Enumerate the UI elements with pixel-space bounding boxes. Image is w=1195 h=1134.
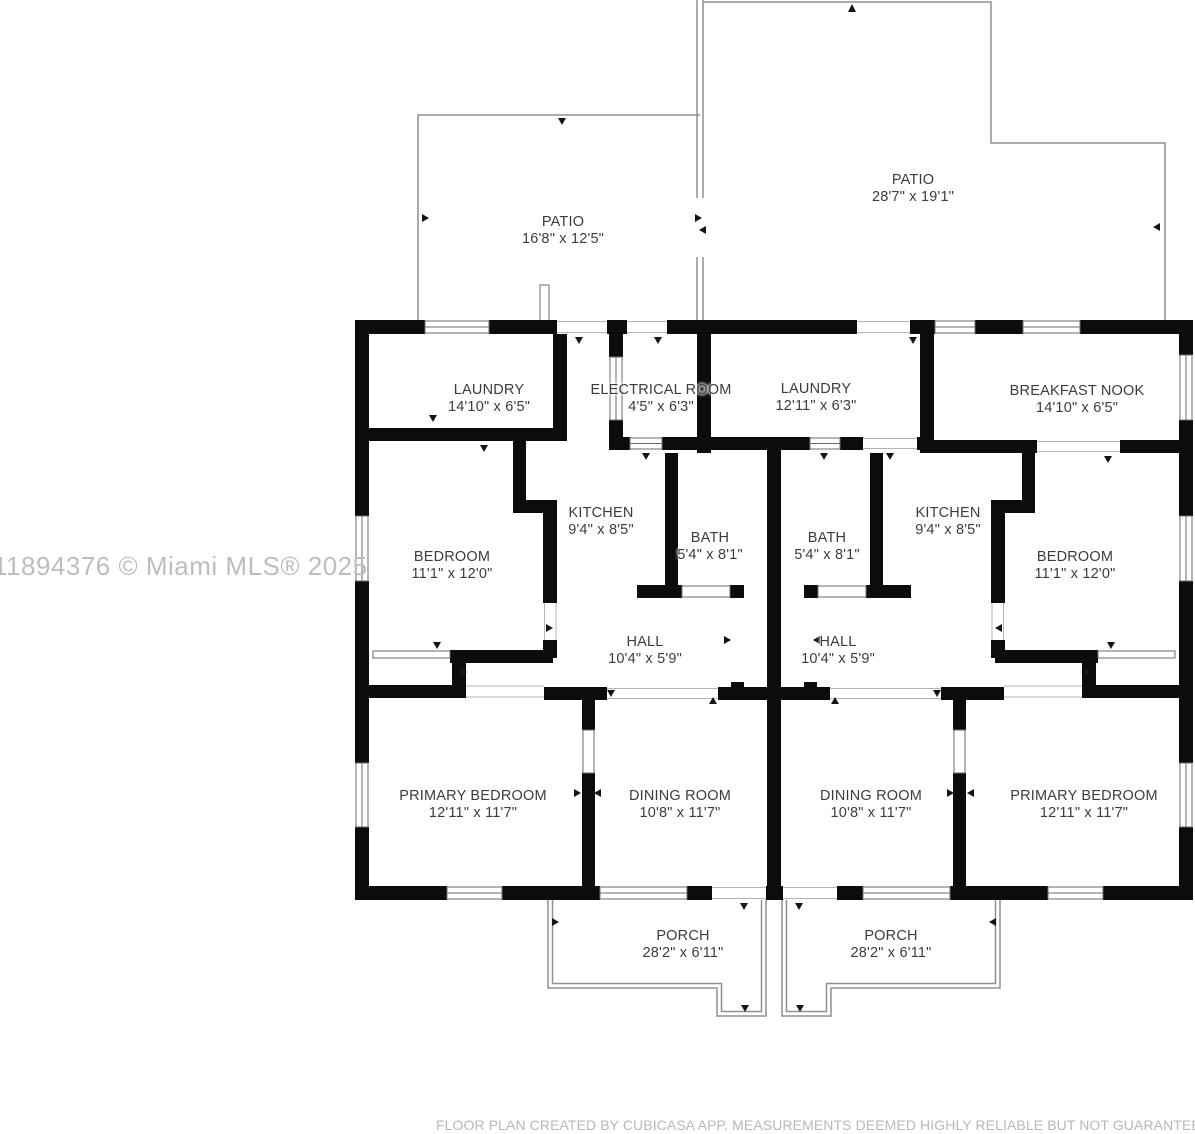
room-dims: 28'7" x 19'1" [872, 189, 954, 206]
room-name: BEDROOM [1034, 549, 1115, 566]
room-dims: 16'8" x 12'5" [522, 231, 604, 248]
room-dims: 10'8" x 11'7" [629, 805, 731, 822]
room-label-bath-left: BATH5'4" x 8'1" [677, 530, 743, 564]
room-name: HALL [608, 634, 682, 651]
room-name: PRIMARY BEDROOM [399, 788, 547, 805]
room-label-porch-right: PORCH28'2" x 6'11" [850, 928, 931, 962]
room-dims: 28'2" x 6'11" [850, 945, 931, 962]
patio-outlines [418, 0, 1165, 322]
room-dims: 12'11" x 11'7" [399, 805, 547, 822]
room-label-bath-right: BATH5'4" x 8'1" [794, 530, 860, 564]
room-dims: 11'1" x 12'0" [411, 566, 492, 583]
room-dims: 9'4" x 8'5" [568, 522, 634, 539]
room-label-electrical-room: ELECTRICAL ROOM4'5" x 6'3" [590, 382, 731, 416]
room-dims: 5'4" x 8'1" [794, 547, 860, 564]
room-name: LAUNDRY [448, 382, 530, 399]
room-name: DINING ROOM [629, 788, 731, 805]
room-label-patio-right: PATIO28'7" x 19'1" [872, 172, 954, 206]
room-name: ELECTRICAL ROOM [590, 382, 731, 399]
room-name: BATH [677, 530, 743, 547]
room-name: LAUNDRY [775, 381, 856, 398]
room-dims: 12'11" x 11'7" [1010, 805, 1158, 822]
footer-disclaimer: FLOOR PLAN CREATED BY CUBICASA APP. MEAS… [436, 1117, 1195, 1133]
room-name: PATIO [872, 172, 954, 189]
room-dims: 10'8" x 11'7" [820, 805, 922, 822]
room-label-hall-left: HALL10'4" x 5'9" [608, 634, 682, 668]
room-dims: 28'2" x 6'11" [642, 945, 723, 962]
room-name: BATH [794, 530, 860, 547]
room-name: HALL [801, 634, 875, 651]
floor-plan-page: PATIO16'8" x 12'5" PATIO28'7" x 19'1" LA… [0, 0, 1195, 1134]
room-label-kitchen-right: KITCHEN9'4" x 8'5" [915, 505, 981, 539]
room-name: PRIMARY BEDROOM [1010, 788, 1158, 805]
room-name: PORCH [642, 928, 723, 945]
room-dims: 5'4" x 8'1" [677, 547, 743, 564]
room-label-kitchen-left: KITCHEN9'4" x 8'5" [568, 505, 634, 539]
room-name: BREAKFAST NOOK [1010, 383, 1145, 400]
mls-watermark: 11894376 © Miami MLS® 2025 [0, 551, 368, 582]
room-label-porch-left: PORCH28'2" x 6'11" [642, 928, 723, 962]
room-label-laundry-right: LAUNDRY12'11" x 6'3" [775, 381, 856, 415]
room-label-dining-room-left: DINING ROOM10'8" x 11'7" [629, 788, 731, 822]
room-label-hall-right: HALL10'4" x 5'9" [801, 634, 875, 668]
room-name: DINING ROOM [820, 788, 922, 805]
room-dims: 9'4" x 8'5" [915, 522, 981, 539]
room-dims: 12'11" x 6'3" [775, 398, 856, 415]
room-label-dining-room-right: DINING ROOM10'8" x 11'7" [820, 788, 922, 822]
room-dims: 14'10" x 6'5" [448, 399, 530, 416]
room-label-breakfast-nook: BREAKFAST NOOK14'10" x 6'5" [1010, 383, 1145, 417]
room-dims: 4'5" x 6'3" [590, 399, 731, 416]
room-label-primary-bedroom-right: PRIMARY BEDROOM12'11" x 11'7" [1010, 788, 1158, 822]
room-name: BEDROOM [411, 549, 492, 566]
room-dims: 11'1" x 12'0" [1034, 566, 1115, 583]
room-label-bedroom-right: BEDROOM11'1" x 12'0" [1034, 549, 1115, 583]
room-label-primary-bedroom-left: PRIMARY BEDROOM12'11" x 11'7" [399, 788, 547, 822]
porch-outlines [548, 900, 1000, 1016]
room-label-bedroom-left: BEDROOM11'1" x 12'0" [411, 549, 492, 583]
room-name: PATIO [522, 214, 604, 231]
room-name: PORCH [850, 928, 931, 945]
room-dims: 10'4" x 5'9" [608, 651, 682, 668]
room-name: KITCHEN [568, 505, 634, 522]
room-label-patio-left: PATIO16'8" x 12'5" [522, 214, 604, 248]
room-dims: 14'10" x 6'5" [1010, 400, 1145, 417]
room-dims: 10'4" x 5'9" [801, 651, 875, 668]
room-label-laundry-left: LAUNDRY14'10" x 6'5" [448, 382, 530, 416]
room-name: KITCHEN [915, 505, 981, 522]
